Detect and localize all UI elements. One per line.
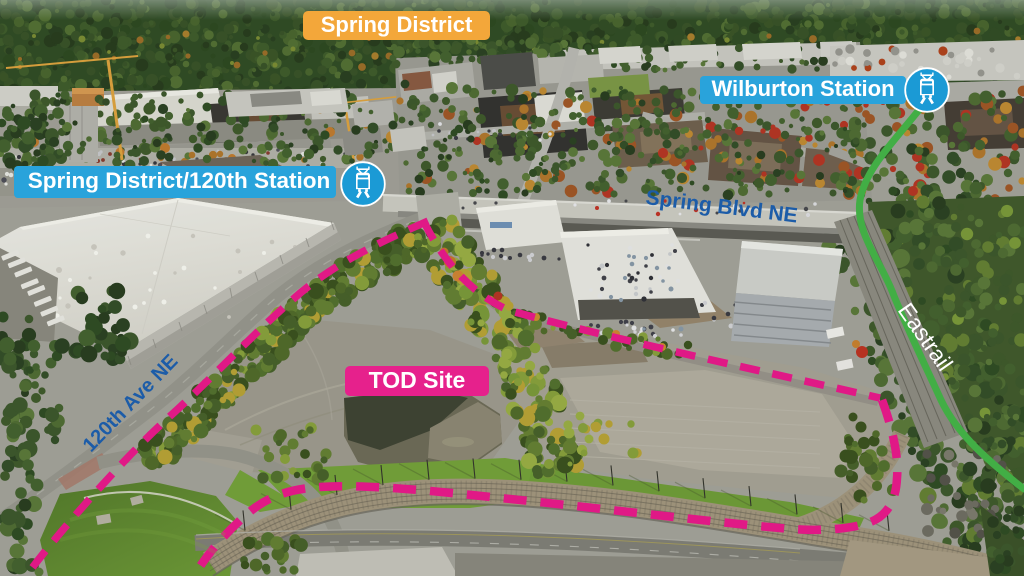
svg-text:Spring Blvd NE: Spring Blvd NE <box>644 186 799 227</box>
svg-text:120th Ave NE: 120th Ave NE <box>79 350 183 456</box>
svg-text:Eastrail: Eastrail <box>893 298 958 376</box>
